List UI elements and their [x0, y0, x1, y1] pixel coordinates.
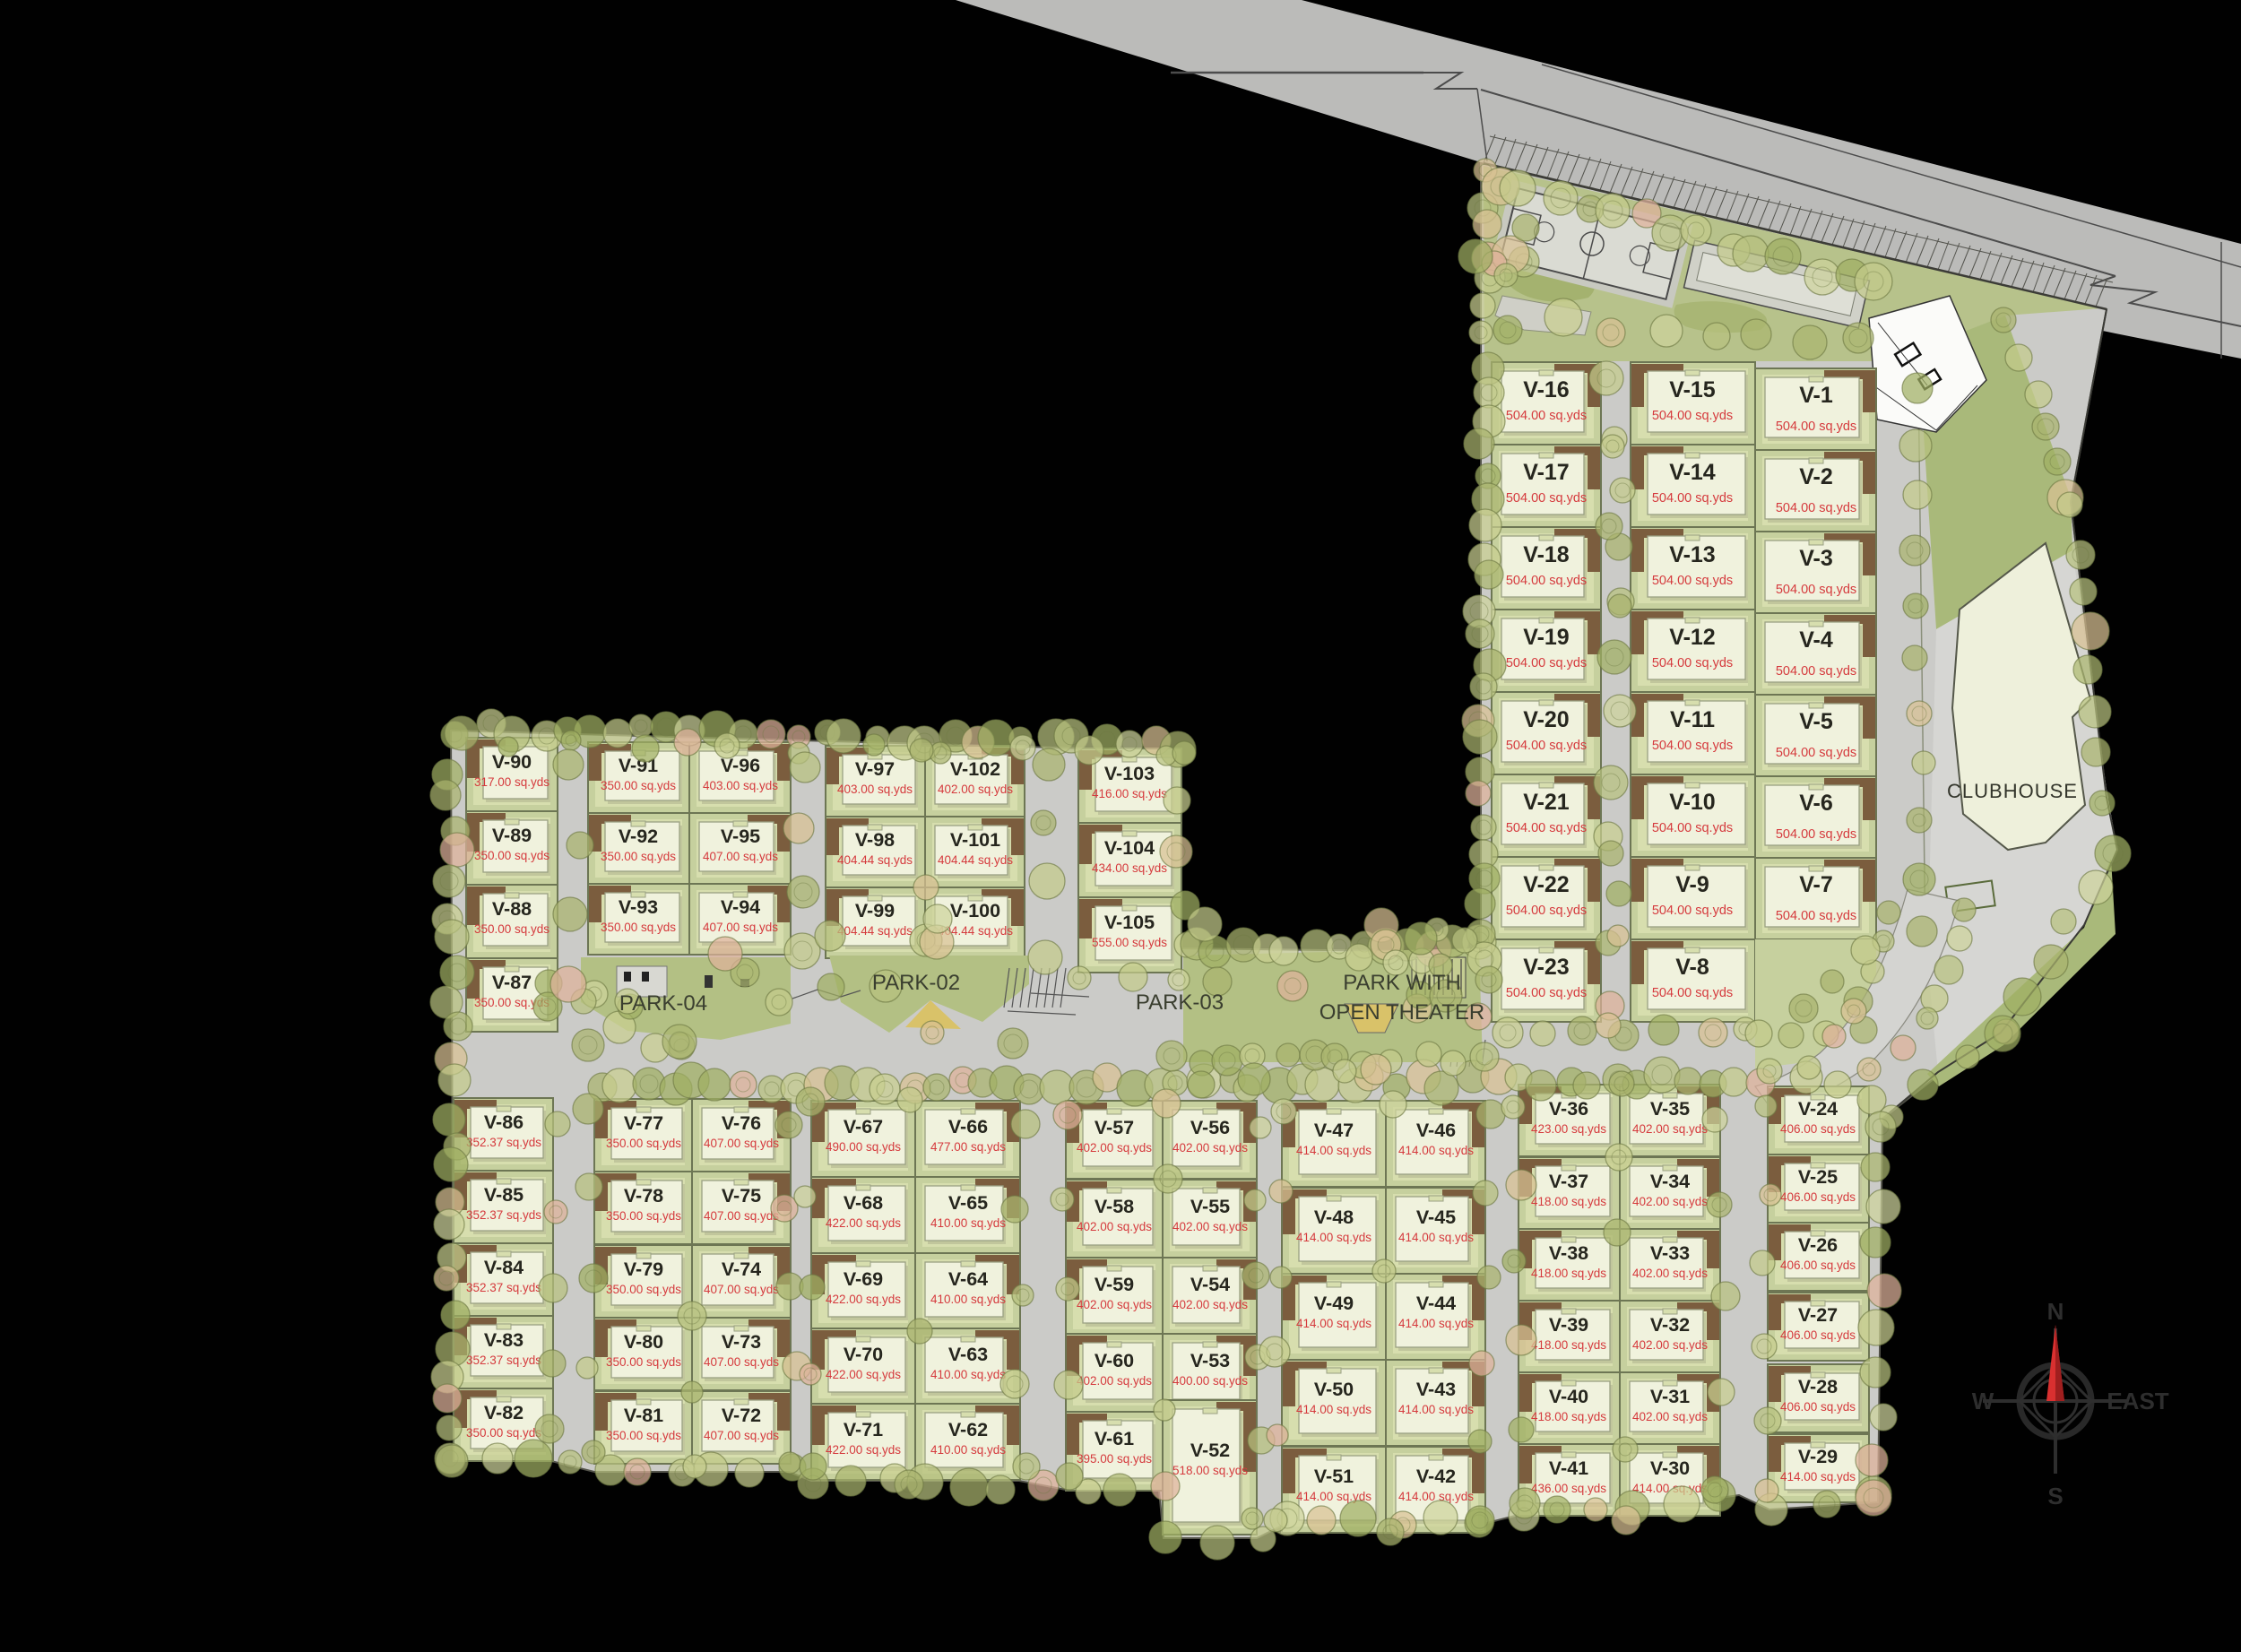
- svg-text:V-11: V-11: [1670, 707, 1715, 732]
- svg-text:504.00 sq.yds: 504.00 sq.yds: [1506, 739, 1587, 753]
- svg-text:V-63: V-63: [948, 1344, 988, 1365]
- svg-text:V-100: V-100: [950, 900, 1000, 921]
- svg-text:416.00 sq.yds: 416.00 sq.yds: [1092, 787, 1167, 800]
- svg-text:V-99: V-99: [855, 900, 895, 921]
- svg-text:V-93: V-93: [619, 896, 658, 918]
- svg-text:V-12: V-12: [1669, 625, 1715, 650]
- svg-text:V-36: V-36: [1549, 1098, 1588, 1120]
- svg-text:504.00 sq.yds: 504.00 sq.yds: [1506, 491, 1587, 506]
- svg-text:V-103: V-103: [1104, 763, 1155, 784]
- svg-text:V-102: V-102: [950, 758, 1000, 780]
- svg-text:CLUBHOUSE: CLUBHOUSE: [1947, 780, 2078, 802]
- svg-text:504.00 sq.yds: 504.00 sq.yds: [1506, 656, 1587, 670]
- svg-text:402.00 sq.yds: 402.00 sq.yds: [1172, 1298, 1248, 1311]
- svg-text:V-33: V-33: [1650, 1242, 1690, 1264]
- svg-text:V-69: V-69: [844, 1268, 883, 1290]
- svg-text:PARK WITH: PARK WITH: [1343, 971, 1461, 995]
- svg-text:414.00 sq.yds: 414.00 sq.yds: [1296, 1144, 1371, 1157]
- svg-text:V-79: V-79: [624, 1258, 663, 1280]
- svg-text:V-1: V-1: [1799, 383, 1833, 408]
- svg-text:EAST: EAST: [2107, 1388, 2168, 1414]
- svg-text:418.00 sq.yds: 418.00 sq.yds: [1531, 1410, 1606, 1423]
- svg-text:352.37 sq.yds: 352.37 sq.yds: [466, 1136, 541, 1149]
- svg-text:414.00 sq.yds: 414.00 sq.yds: [1780, 1470, 1856, 1483]
- svg-text:422.00 sq.yds: 422.00 sq.yds: [826, 1443, 901, 1457]
- svg-text:V-19: V-19: [1523, 625, 1569, 650]
- svg-text:W: W: [1972, 1388, 1994, 1414]
- svg-text:V-97: V-97: [855, 758, 895, 780]
- svg-text:V-80: V-80: [624, 1331, 663, 1353]
- svg-text:402.00 sq.yds: 402.00 sq.yds: [1172, 1141, 1248, 1155]
- svg-text:V-71: V-71: [844, 1419, 883, 1440]
- svg-text:V-27: V-27: [1798, 1304, 1838, 1326]
- svg-text:414.00 sq.yds: 414.00 sq.yds: [1296, 1231, 1371, 1244]
- svg-text:V-38: V-38: [1549, 1242, 1588, 1264]
- svg-text:V-67: V-67: [844, 1116, 883, 1137]
- svg-text:504.00 sq.yds: 504.00 sq.yds: [1776, 501, 1856, 515]
- svg-text:414.00 sq.yds: 414.00 sq.yds: [1398, 1403, 1474, 1416]
- svg-text:407.00 sq.yds: 407.00 sq.yds: [703, 921, 778, 934]
- svg-text:407.00 sq.yds: 407.00 sq.yds: [704, 1283, 779, 1296]
- svg-text:423.00 sq.yds: 423.00 sq.yds: [1531, 1122, 1606, 1136]
- svg-text:V-41: V-41: [1549, 1457, 1588, 1479]
- svg-text:V-6: V-6: [1799, 791, 1833, 816]
- svg-text:504.00 sq.yds: 504.00 sq.yds: [1506, 409, 1587, 423]
- svg-text:V-68: V-68: [844, 1192, 883, 1214]
- svg-text:400.00 sq.yds: 400.00 sq.yds: [1172, 1374, 1248, 1388]
- svg-text:V-104: V-104: [1104, 837, 1155, 859]
- svg-text:V-46: V-46: [1416, 1120, 1456, 1141]
- svg-text:504.00 sq.yds: 504.00 sq.yds: [1652, 739, 1733, 753]
- svg-text:V-83: V-83: [484, 1329, 523, 1351]
- svg-text:504.00 sq.yds: 504.00 sq.yds: [1776, 827, 1856, 842]
- svg-text:V-5: V-5: [1799, 709, 1833, 734]
- svg-text:402.00 sq.yds: 402.00 sq.yds: [1632, 1410, 1708, 1423]
- svg-text:350.00 sq.yds: 350.00 sq.yds: [466, 1426, 541, 1440]
- svg-text:V-47: V-47: [1314, 1120, 1354, 1141]
- svg-text:V-17: V-17: [1523, 460, 1569, 485]
- svg-text:352.37 sq.yds: 352.37 sq.yds: [466, 1281, 541, 1294]
- svg-text:504.00 sq.yds: 504.00 sq.yds: [1506, 904, 1587, 918]
- svg-text:350.00 sq.yds: 350.00 sq.yds: [474, 849, 549, 862]
- svg-text:V-53: V-53: [1190, 1350, 1230, 1371]
- svg-text:V-14: V-14: [1669, 460, 1716, 485]
- svg-text:N: N: [2047, 1298, 2064, 1325]
- svg-text:504.00 sq.yds: 504.00 sq.yds: [1506, 821, 1587, 835]
- svg-text:V-94: V-94: [721, 896, 760, 918]
- svg-text:V-75: V-75: [722, 1185, 761, 1207]
- svg-text:V-26: V-26: [1798, 1234, 1838, 1256]
- svg-text:403.00 sq.yds: 403.00 sq.yds: [703, 779, 778, 792]
- svg-text:352.37 sq.yds: 352.37 sq.yds: [466, 1354, 541, 1367]
- svg-text:V-45: V-45: [1416, 1207, 1456, 1228]
- svg-text:490.00 sq.yds: 490.00 sq.yds: [826, 1140, 901, 1154]
- svg-text:402.00 sq.yds: 402.00 sq.yds: [1172, 1220, 1248, 1233]
- svg-text:V-92: V-92: [619, 826, 658, 847]
- svg-text:V-25: V-25: [1798, 1166, 1838, 1188]
- svg-text:V-56: V-56: [1190, 1117, 1230, 1138]
- svg-text:422.00 sq.yds: 422.00 sq.yds: [826, 1368, 901, 1381]
- svg-text:V-73: V-73: [722, 1331, 761, 1353]
- svg-text:402.00 sq.yds: 402.00 sq.yds: [1632, 1195, 1708, 1208]
- svg-text:V-101: V-101: [950, 829, 1000, 851]
- svg-text:V-52: V-52: [1190, 1440, 1230, 1461]
- svg-text:V-23: V-23: [1523, 955, 1569, 980]
- svg-text:V-35: V-35: [1650, 1098, 1690, 1120]
- svg-text:V-77: V-77: [624, 1112, 663, 1134]
- svg-text:404.44 sq.yds: 404.44 sq.yds: [837, 853, 913, 867]
- svg-text:504.00 sq.yds: 504.00 sq.yds: [1652, 986, 1733, 1000]
- svg-text:V-2: V-2: [1799, 464, 1833, 489]
- svg-text:406.00 sq.yds: 406.00 sq.yds: [1780, 1190, 1856, 1204]
- svg-text:V-24: V-24: [1798, 1098, 1838, 1120]
- svg-text:V-70: V-70: [844, 1344, 883, 1365]
- svg-text:V-78: V-78: [624, 1185, 663, 1207]
- svg-text:504.00 sq.yds: 504.00 sq.yds: [1506, 574, 1587, 588]
- svg-text:350.00 sq.yds: 350.00 sq.yds: [601, 921, 676, 934]
- svg-text:V-28: V-28: [1798, 1376, 1838, 1397]
- svg-text:V-39: V-39: [1549, 1314, 1588, 1336]
- svg-text:402.00 sq.yds: 402.00 sq.yds: [1077, 1220, 1152, 1233]
- svg-text:518.00 sq.yds: 518.00 sq.yds: [1172, 1464, 1248, 1477]
- svg-text:404.44 sq.yds: 404.44 sq.yds: [938, 853, 1013, 867]
- svg-text:V-7: V-7: [1799, 872, 1833, 897]
- svg-text:350.00 sq.yds: 350.00 sq.yds: [601, 850, 676, 863]
- svg-text:V-4: V-4: [1799, 627, 1833, 653]
- svg-text:V-55: V-55: [1190, 1196, 1230, 1217]
- svg-text:V-29: V-29: [1798, 1446, 1838, 1467]
- svg-text:PARK-03: PARK-03: [1136, 990, 1224, 1015]
- svg-text:410.00 sq.yds: 410.00 sq.yds: [930, 1368, 1006, 1381]
- svg-text:477.00 sq.yds: 477.00 sq.yds: [930, 1140, 1006, 1154]
- svg-text:504.00 sq.yds: 504.00 sq.yds: [1776, 746, 1856, 760]
- svg-text:407.00 sq.yds: 407.00 sq.yds: [704, 1137, 779, 1150]
- svg-text:V-43: V-43: [1416, 1379, 1456, 1400]
- svg-text:350.00 sq.yds: 350.00 sq.yds: [601, 779, 676, 792]
- svg-text:410.00 sq.yds: 410.00 sq.yds: [930, 1293, 1006, 1306]
- svg-text:V-66: V-66: [948, 1116, 988, 1137]
- svg-text:V-64: V-64: [948, 1268, 988, 1290]
- svg-text:504.00 sq.yds: 504.00 sq.yds: [1776, 664, 1856, 679]
- svg-text:V-32: V-32: [1650, 1314, 1690, 1336]
- svg-text:V-74: V-74: [722, 1258, 761, 1280]
- svg-text:436.00 sq.yds: 436.00 sq.yds: [1531, 1482, 1606, 1495]
- svg-text:V-40: V-40: [1549, 1386, 1588, 1407]
- svg-text:402.00 sq.yds: 402.00 sq.yds: [938, 783, 1013, 796]
- svg-text:OPEN THEATER: OPEN THEATER: [1320, 1000, 1484, 1025]
- svg-text:V-44: V-44: [1416, 1293, 1456, 1314]
- svg-text:V-37: V-37: [1549, 1171, 1588, 1192]
- svg-text:402.00 sq.yds: 402.00 sq.yds: [1632, 1338, 1708, 1352]
- svg-text:V-42: V-42: [1416, 1466, 1456, 1487]
- svg-text:504.00 sq.yds: 504.00 sq.yds: [1776, 583, 1856, 597]
- svg-text:V-15: V-15: [1669, 377, 1716, 402]
- svg-text:V-9: V-9: [1675, 872, 1709, 897]
- svg-text:V-98: V-98: [855, 829, 895, 851]
- svg-text:406.00 sq.yds: 406.00 sq.yds: [1780, 1328, 1856, 1342]
- svg-text:402.00 sq.yds: 402.00 sq.yds: [1077, 1141, 1152, 1155]
- svg-text:403.00 sq.yds: 403.00 sq.yds: [837, 783, 913, 796]
- svg-text:V-22: V-22: [1523, 872, 1569, 897]
- svg-text:V-30: V-30: [1650, 1457, 1690, 1479]
- svg-text:V-86: V-86: [484, 1111, 523, 1133]
- svg-text:V-51: V-51: [1314, 1466, 1354, 1487]
- svg-text:504.00 sq.yds: 504.00 sq.yds: [1652, 821, 1733, 835]
- svg-text:V-81: V-81: [624, 1405, 663, 1426]
- svg-text:555.00 sq.yds: 555.00 sq.yds: [1092, 936, 1167, 949]
- svg-text:414.00 sq.yds: 414.00 sq.yds: [1398, 1144, 1474, 1157]
- svg-text:V-95: V-95: [721, 826, 760, 847]
- svg-text:PARK-04: PARK-04: [619, 991, 707, 1016]
- svg-text:402.00 sq.yds: 402.00 sq.yds: [1632, 1122, 1708, 1136]
- svg-text:504.00 sq.yds: 504.00 sq.yds: [1776, 909, 1856, 923]
- svg-text:504.00 sq.yds: 504.00 sq.yds: [1652, 656, 1733, 670]
- svg-text:418.00 sq.yds: 418.00 sq.yds: [1531, 1195, 1606, 1208]
- svg-text:406.00 sq.yds: 406.00 sq.yds: [1780, 1258, 1856, 1272]
- svg-text:406.00 sq.yds: 406.00 sq.yds: [1780, 1122, 1856, 1136]
- svg-text:V-16: V-16: [1523, 377, 1569, 402]
- svg-text:407.00 sq.yds: 407.00 sq.yds: [703, 850, 778, 863]
- svg-text:406.00 sq.yds: 406.00 sq.yds: [1780, 1400, 1856, 1414]
- svg-text:V-72: V-72: [722, 1405, 761, 1426]
- svg-text:404.44 sq.yds: 404.44 sq.yds: [837, 924, 913, 938]
- svg-text:V-58: V-58: [1095, 1196, 1134, 1217]
- svg-text:S: S: [2047, 1483, 2063, 1509]
- svg-text:350.00 sq.yds: 350.00 sq.yds: [606, 1429, 681, 1442]
- svg-text:V-87: V-87: [492, 972, 532, 993]
- svg-text:407.00 sq.yds: 407.00 sq.yds: [704, 1355, 779, 1369]
- svg-text:V-65: V-65: [948, 1192, 988, 1214]
- svg-text:V-84: V-84: [484, 1257, 523, 1278]
- svg-text:418.00 sq.yds: 418.00 sq.yds: [1531, 1267, 1606, 1280]
- svg-text:V-10: V-10: [1669, 790, 1715, 815]
- svg-text:V-60: V-60: [1095, 1350, 1134, 1371]
- svg-text:V-20: V-20: [1523, 707, 1569, 732]
- svg-text:414.00 sq.yds: 414.00 sq.yds: [1398, 1231, 1474, 1244]
- svg-text:350.00 sq.yds: 350.00 sq.yds: [606, 1355, 681, 1369]
- svg-text:PARK-02: PARK-02: [872, 971, 960, 995]
- svg-text:402.00 sq.yds: 402.00 sq.yds: [1077, 1298, 1152, 1311]
- svg-text:414.00 sq.yds: 414.00 sq.yds: [1296, 1403, 1371, 1416]
- svg-text:V-50: V-50: [1314, 1379, 1354, 1400]
- svg-text:V-54: V-54: [1190, 1274, 1230, 1295]
- svg-text:V-57: V-57: [1095, 1117, 1134, 1138]
- svg-text:422.00 sq.yds: 422.00 sq.yds: [826, 1216, 901, 1230]
- svg-text:434.00 sq.yds: 434.00 sq.yds: [1092, 861, 1167, 875]
- svg-text:410.00 sq.yds: 410.00 sq.yds: [930, 1216, 1006, 1230]
- svg-text:V-61: V-61: [1095, 1428, 1134, 1449]
- svg-text:402.00 sq.yds: 402.00 sq.yds: [1632, 1267, 1708, 1280]
- svg-text:V-76: V-76: [722, 1112, 761, 1134]
- svg-text:422.00 sq.yds: 422.00 sq.yds: [826, 1293, 901, 1306]
- svg-text:V-31: V-31: [1650, 1386, 1690, 1407]
- svg-text:504.00 sq.yds: 504.00 sq.yds: [1776, 419, 1856, 434]
- svg-text:V-3: V-3: [1799, 546, 1833, 571]
- svg-text:504.00 sq.yds: 504.00 sq.yds: [1506, 986, 1587, 1000]
- svg-text:352.37 sq.yds: 352.37 sq.yds: [466, 1208, 541, 1222]
- svg-text:V-82: V-82: [484, 1402, 523, 1423]
- svg-text:V-49: V-49: [1314, 1293, 1354, 1314]
- svg-text:414.00 sq.yds: 414.00 sq.yds: [1296, 1317, 1371, 1330]
- svg-text:317.00 sq.yds: 317.00 sq.yds: [474, 775, 549, 789]
- svg-text:V-59: V-59: [1095, 1274, 1134, 1295]
- svg-text:350.00 sq.yds: 350.00 sq.yds: [474, 922, 549, 936]
- svg-text:V-48: V-48: [1314, 1207, 1354, 1228]
- svg-text:V-8: V-8: [1675, 955, 1709, 980]
- svg-text:402.00 sq.yds: 402.00 sq.yds: [1077, 1374, 1152, 1388]
- svg-text:350.00 sq.yds: 350.00 sq.yds: [606, 1283, 681, 1296]
- svg-text:350.00 sq.yds: 350.00 sq.yds: [606, 1137, 681, 1150]
- svg-text:V-18: V-18: [1523, 542, 1570, 567]
- svg-text:V-34: V-34: [1650, 1171, 1690, 1192]
- svg-text:V-89: V-89: [492, 825, 532, 846]
- svg-text:504.00 sq.yds: 504.00 sq.yds: [1652, 574, 1733, 588]
- svg-text:414.00 sq.yds: 414.00 sq.yds: [1398, 1317, 1474, 1330]
- svg-text:418.00 sq.yds: 418.00 sq.yds: [1531, 1338, 1606, 1352]
- svg-text:395.00 sq.yds: 395.00 sq.yds: [1077, 1452, 1152, 1466]
- svg-text:504.00 sq.yds: 504.00 sq.yds: [1652, 409, 1733, 423]
- svg-text:V-13: V-13: [1669, 542, 1715, 567]
- svg-text:350.00 sq.yds: 350.00 sq.yds: [606, 1209, 681, 1223]
- svg-text:V-62: V-62: [948, 1419, 988, 1440]
- svg-text:V-105: V-105: [1104, 912, 1155, 933]
- svg-text:V-85: V-85: [484, 1184, 523, 1206]
- svg-text:504.00 sq.yds: 504.00 sq.yds: [1652, 491, 1733, 506]
- svg-text:407.00 sq.yds: 407.00 sq.yds: [704, 1429, 779, 1442]
- svg-text:V-21: V-21: [1523, 790, 1570, 815]
- svg-text:407.00 sq.yds: 407.00 sq.yds: [704, 1209, 779, 1223]
- svg-text:410.00 sq.yds: 410.00 sq.yds: [930, 1443, 1006, 1457]
- svg-text:V-88: V-88: [492, 898, 532, 920]
- svg-text:504.00 sq.yds: 504.00 sq.yds: [1652, 904, 1733, 918]
